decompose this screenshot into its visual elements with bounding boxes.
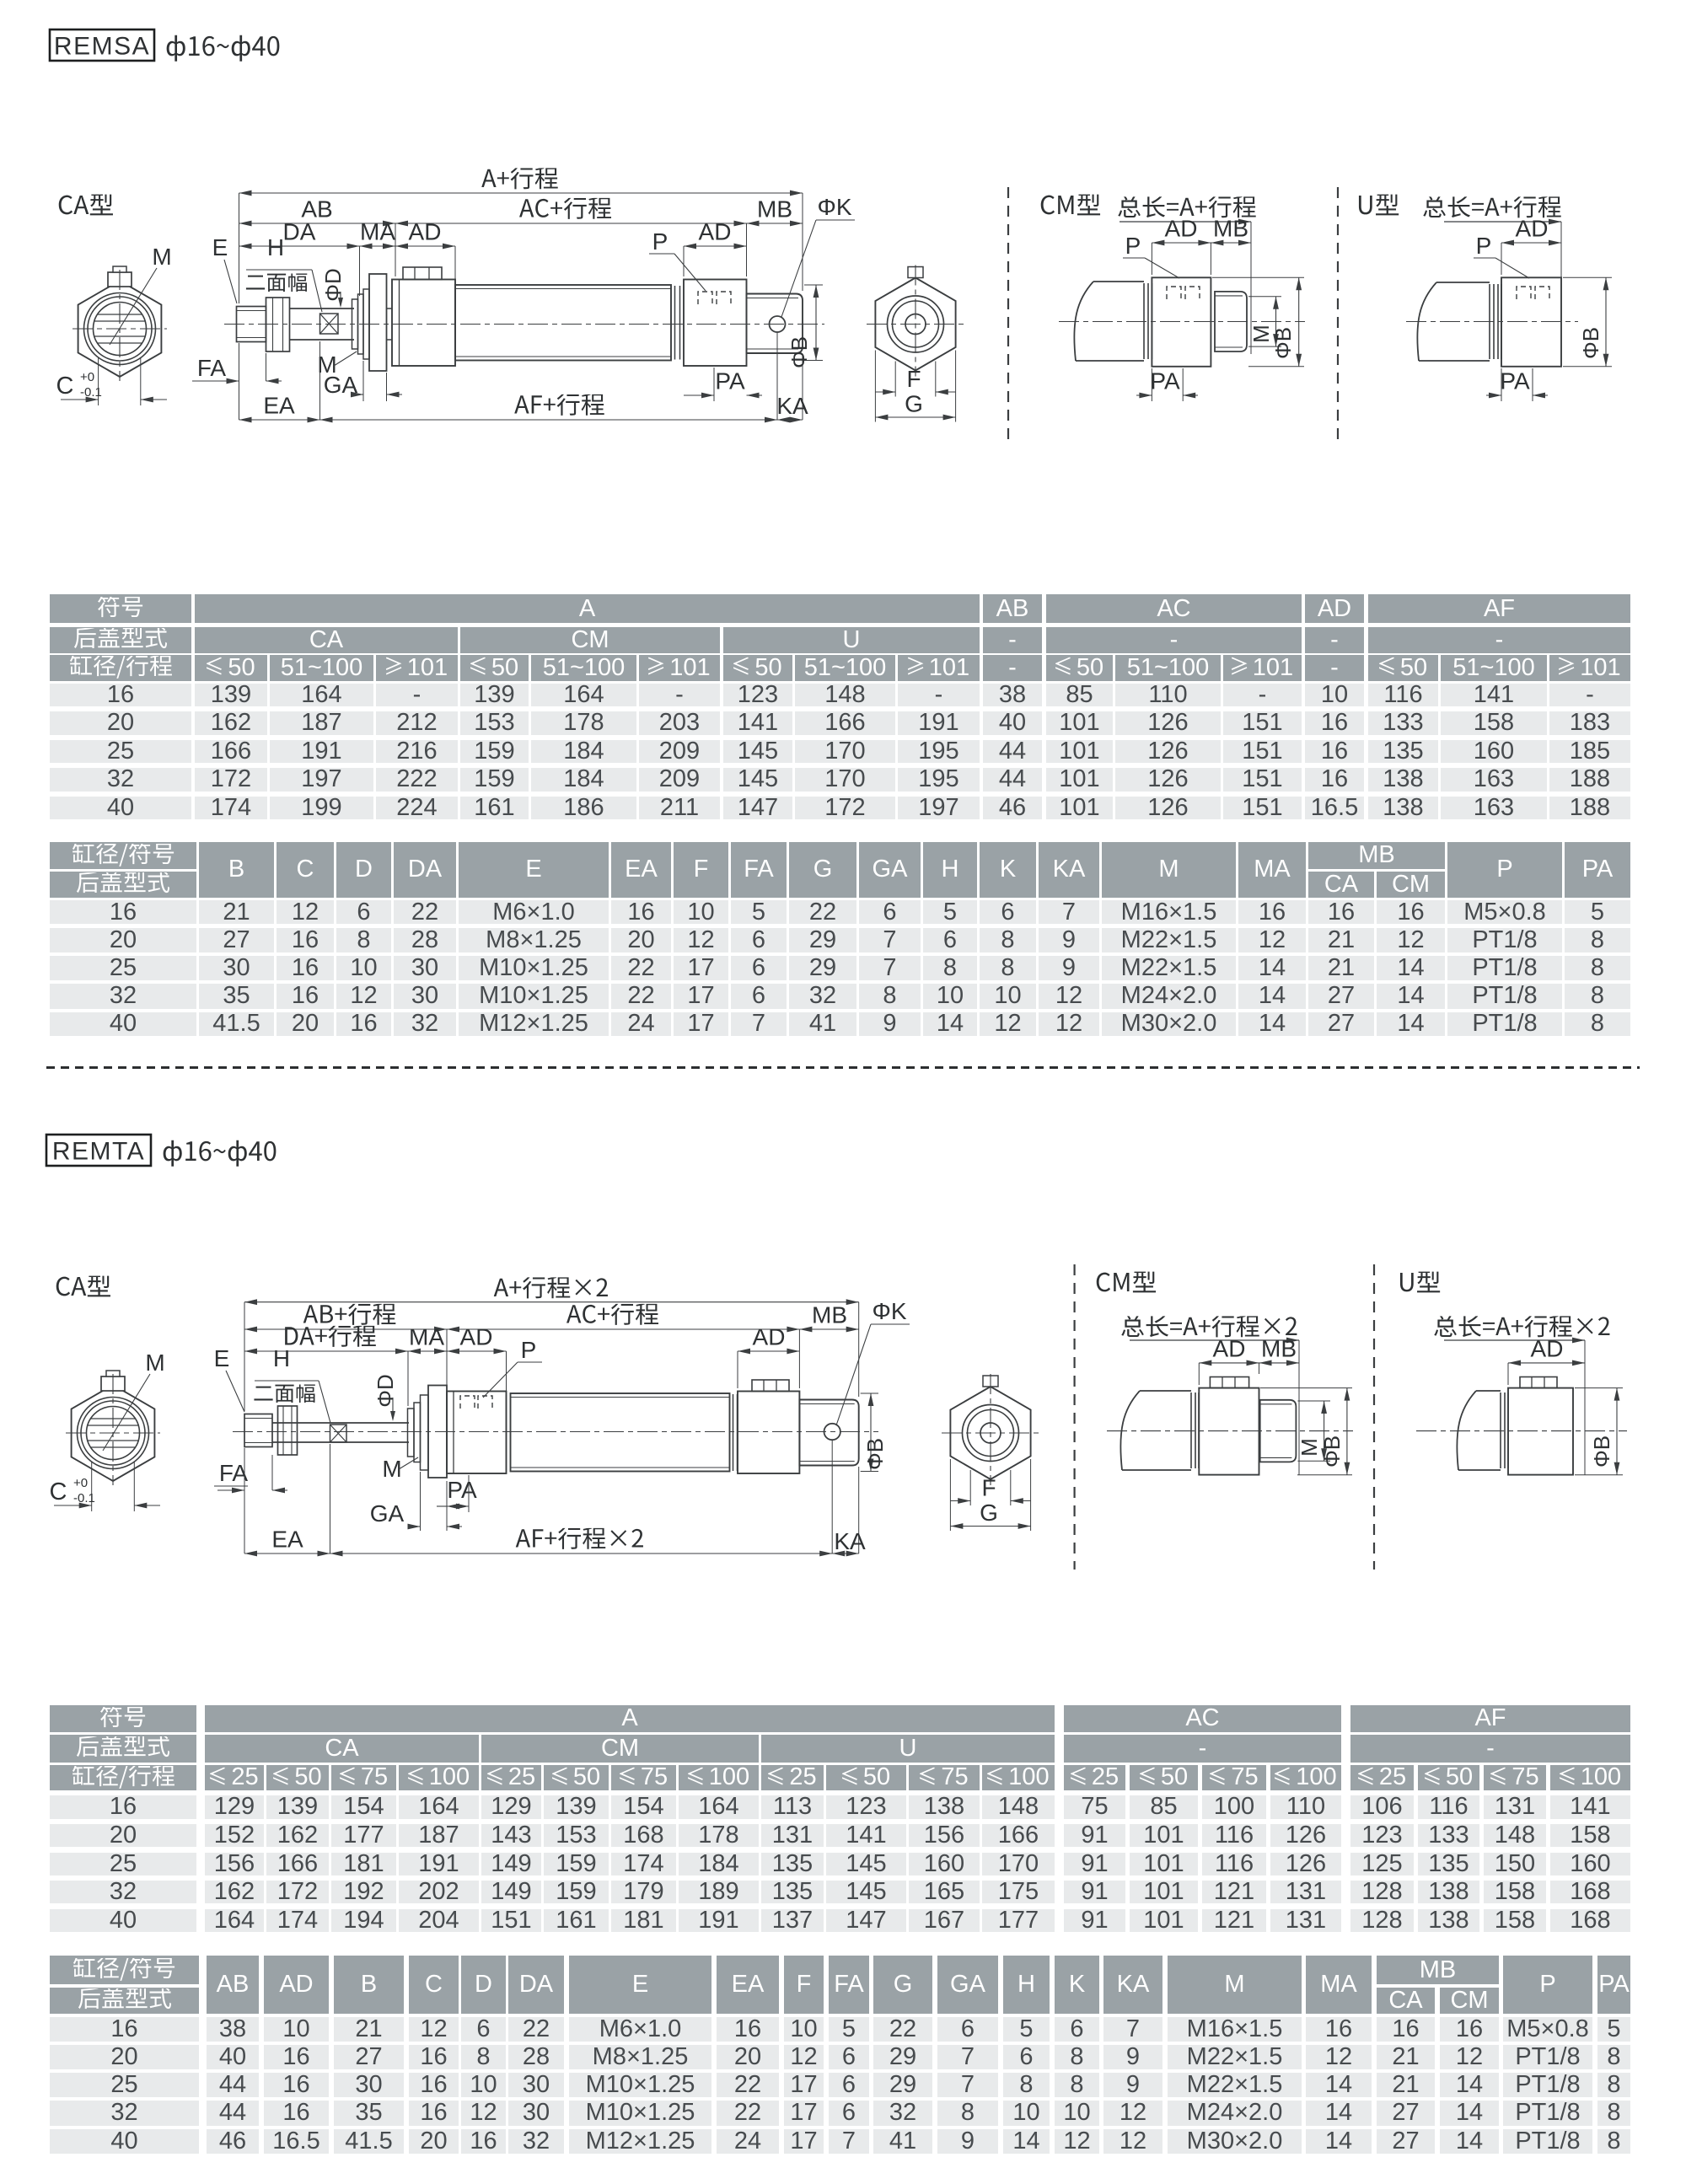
svg-text:G: G [905,391,923,417]
svg-text:-0.1: -0.1 [80,385,102,400]
svg-text:MB: MB [757,196,792,223]
svg-text:ΦB: ΦB [787,336,812,368]
svg-text:P: P [521,1337,537,1363]
svg-text:-0.1: -0.1 [73,1491,95,1505]
svg-text:AD: AD [460,1324,493,1350]
svg-text:AD: AD [1165,216,1198,242]
svg-text:FA: FA [219,1460,249,1486]
svg-text:AD: AD [1213,1336,1246,1362]
svg-text:PA: PA [1500,368,1530,394]
svg-text:MA: MA [409,1324,444,1350]
svg-text:KA: KA [776,393,808,419]
svg-text:F: F [906,366,921,392]
svg-text:ΦB: ΦB [862,1438,888,1470]
svg-text:ΦD: ΦD [373,1374,398,1408]
svg-text:ΦB: ΦB [1578,327,1603,359]
svg-text:ΦK: ΦK [817,194,851,220]
svg-text:PA: PA [1150,368,1180,394]
svg-text:EA: EA [271,1527,303,1553]
svg-text:AD: AD [753,1324,786,1350]
svg-text:H: H [267,234,284,260]
svg-text:GA: GA [370,1500,405,1527]
svg-text:C: C [56,373,74,400]
svg-text:DA: DA [283,219,316,245]
svg-text:KA: KA [834,1528,866,1554]
svg-text:REMSA: REMSA [54,33,150,61]
svg-text:MB: MB [1261,1336,1297,1362]
svg-text:EA: EA [263,393,295,419]
svg-text:ΦK: ΦK [872,1298,906,1324]
svg-text:M: M [152,244,171,270]
svg-text:MB: MB [812,1302,847,1328]
svg-text:AD: AD [409,219,442,245]
svg-text:ΦB: ΦB [1589,1435,1614,1468]
svg-text:ΦB: ΦB [1319,1435,1345,1468]
svg-text:M: M [145,1350,164,1376]
svg-text:PA: PA [447,1477,477,1503]
svg-text:+0: +0 [73,1476,88,1490]
svg-text:ΦB: ΦB [1270,327,1296,359]
svg-text:AD: AD [699,219,732,245]
svg-text:M: M [1297,1438,1322,1457]
svg-text:P: P [1125,233,1141,259]
svg-text:P: P [1476,233,1492,259]
svg-text:MB: MB [1213,216,1248,242]
svg-text:F: F [981,1475,996,1501]
svg-text:C: C [50,1478,67,1505]
svg-text:+0: +0 [80,370,94,384]
svg-text:AD: AD [1531,1336,1564,1362]
svg-text:H: H [273,1345,290,1371]
svg-text:AD: AD [1516,216,1549,242]
svg-text:G: G [980,1500,998,1526]
svg-text:REMTA: REMTA [52,1138,145,1166]
svg-text:E: E [214,1345,230,1371]
svg-text:ΦD: ΦD [320,268,346,302]
svg-text:E: E [212,234,228,260]
svg-text:MA: MA [360,219,395,245]
svg-text:FA: FA [197,355,227,381]
svg-text:P: P [652,228,668,255]
svg-text:PA: PA [715,368,745,394]
